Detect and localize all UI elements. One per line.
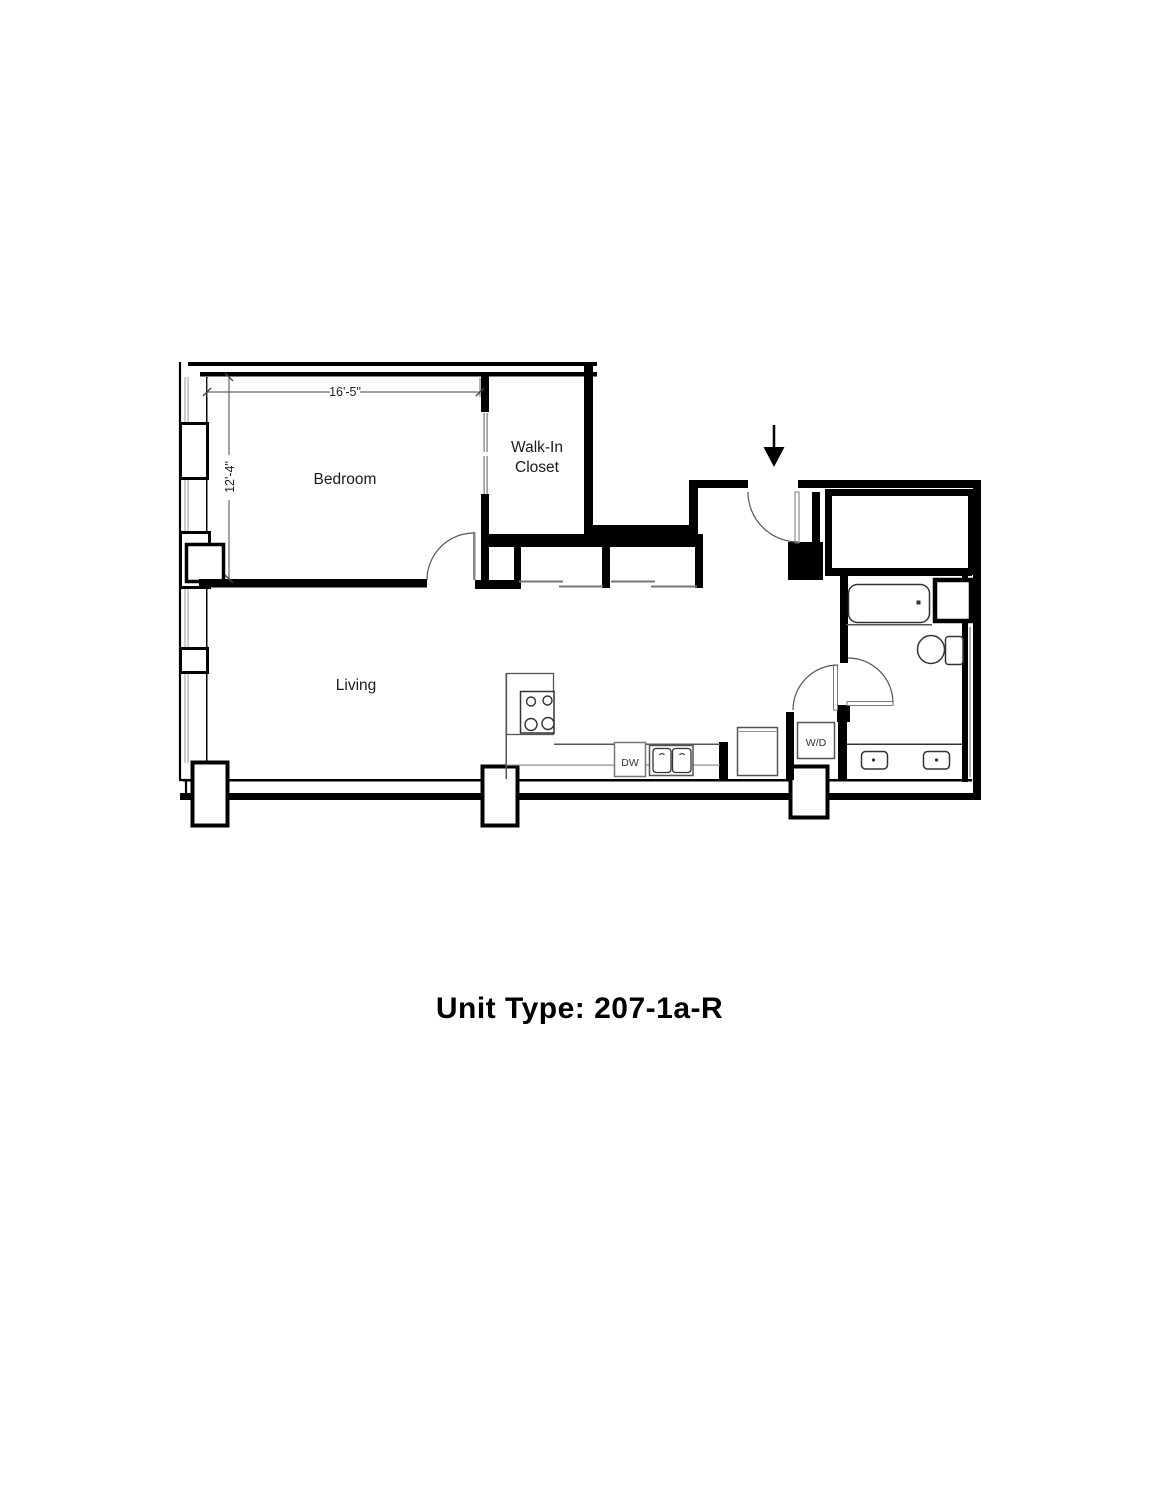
linen-closet [935,580,971,621]
unit-type-title: Unit Type: 207-1a-R [0,992,1159,1026]
laundry-door [793,665,838,710]
bathroom-door [847,658,893,706]
tub-drain [917,601,921,605]
range [507,674,555,735]
living-label: Living [336,677,377,694]
doors [427,413,893,710]
burner [527,697,536,706]
kitchen-sink [650,746,694,776]
entry-door [748,492,799,543]
entry-closet [829,493,972,572]
burner [542,718,554,730]
kitchen: DW [506,673,778,779]
bedroom-door [427,532,476,580]
bedroom-depth-dimension: 12'-4" [223,461,237,493]
burner [543,696,552,705]
walk-in-closet-door [484,413,488,494]
dishwasher: DW [615,743,646,777]
washer-dryer-label: W/D [806,737,827,749]
floorplan-canvas: W/D DW [0,0,1159,1500]
bathroom-fixtures [846,580,971,769]
bedroom-width-dimension: 16'-5" [329,385,361,399]
bedroom-label: Bedroom [314,471,377,488]
walk-in-closet-label-line1: Walk-In [511,439,563,456]
entry-arrow [764,425,785,467]
washer-dryer: W/D [798,723,835,759]
bathtub [846,585,932,626]
vanity [847,744,962,770]
dimension-bedroom-width: 16'-5" [203,378,484,399]
walk-in-closet-label-line2: Closet [515,459,560,476]
floorplan-page: W/D DW [0,0,1159,1500]
toilet [918,636,964,665]
refrigerator [738,728,778,776]
burner [525,719,537,731]
dishwasher-label: DW [621,757,639,769]
